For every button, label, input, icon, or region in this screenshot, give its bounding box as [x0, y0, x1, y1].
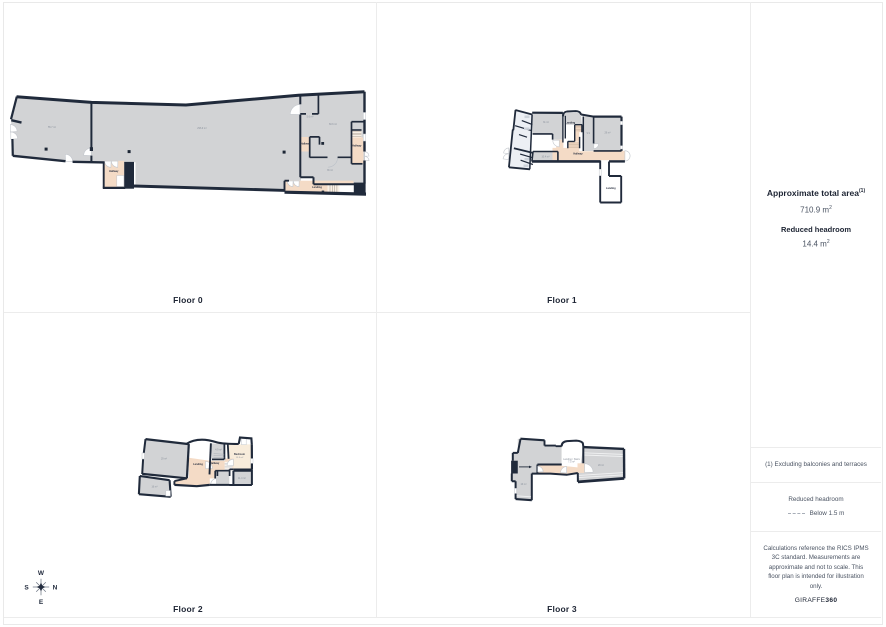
svg-text:13.3 m²: 13.3 m² — [236, 456, 244, 459]
svg-text:60.6 m²: 60.6 m² — [329, 123, 337, 126]
svg-text:5.6 m²: 5.6 m² — [307, 116, 314, 119]
svg-text:Landing: Landing — [565, 121, 575, 124]
svg-text:29 m²: 29 m² — [161, 458, 167, 461]
svg-text:Landing: Landing — [312, 186, 322, 189]
svg-text:Hallway: Hallway — [573, 153, 583, 156]
svg-text:Hallway: Hallway — [109, 170, 119, 173]
svg-text:4.9 m²: 4.9 m² — [215, 449, 222, 452]
svg-text:Bedroom: Bedroom — [234, 453, 246, 456]
svg-text:16 m²: 16 m² — [151, 486, 157, 489]
svg-text:29 m²: 29 m² — [604, 132, 610, 135]
svg-text:36 m²: 36 m² — [327, 169, 333, 172]
svg-text:55.7 m²: 55.7 m² — [48, 126, 56, 129]
svg-text:Landing: Landing — [193, 463, 203, 466]
svg-text:W: W — [38, 570, 45, 577]
svg-text:S: S — [24, 584, 29, 591]
svg-text:E: E — [39, 599, 44, 606]
svg-text:Hallway: Hallway — [352, 145, 362, 148]
svg-text:10.4 m²: 10.4 m² — [541, 156, 549, 159]
svg-text:16 m²: 16 m² — [520, 483, 526, 486]
svg-text:Hallway: Hallway — [210, 462, 220, 465]
svg-text:7.5 m²: 7.5 m² — [568, 461, 575, 464]
svg-text:N: N — [53, 584, 58, 591]
svg-text:Hallway: Hallway — [301, 143, 311, 146]
svg-text:296.9 m²: 296.9 m² — [197, 127, 207, 130]
svg-text:31 m²: 31 m² — [543, 121, 549, 124]
svg-text:11.4 m²: 11.4 m² — [238, 477, 246, 480]
svg-text:Landing: Landing — [606, 187, 616, 190]
svg-text:29 m²: 29 m² — [598, 464, 604, 467]
